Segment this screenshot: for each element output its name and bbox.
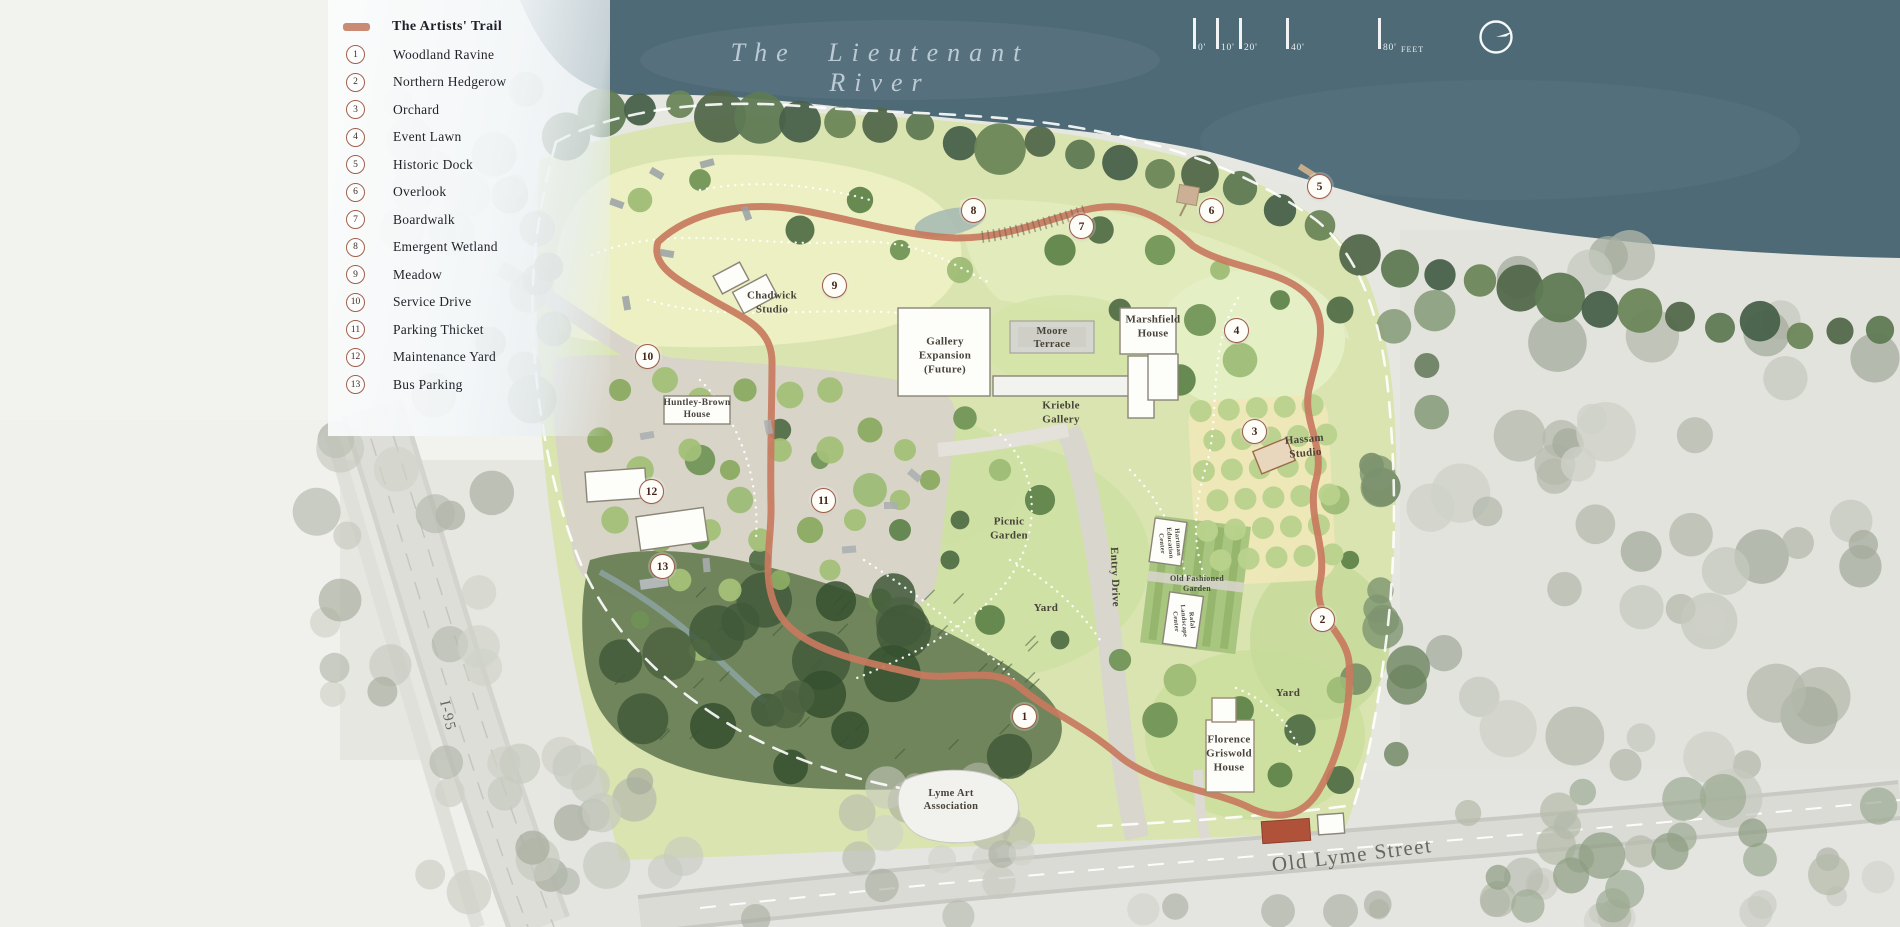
map-label-moore-terrace: Moore Terrace — [1034, 325, 1071, 351]
legend-item-label: Emergent Wetland — [393, 239, 498, 255]
map-label-old-fashioned-garden: Old Fashioned Garden — [1170, 574, 1224, 594]
scale-bar-unit: FEET — [1401, 45, 1424, 54]
map-marker-8: 8 — [961, 198, 986, 223]
map-marker-3: 3 — [1242, 419, 1267, 444]
legend-item-label: Woodland Ravine — [393, 47, 494, 63]
map-marker-4: 4 — [1224, 318, 1249, 343]
legend-item-number-icon: 6 — [346, 183, 365, 202]
map-marker-12: 12 — [639, 479, 664, 504]
legend-item-label: Overlook — [393, 184, 446, 200]
legend-item: 11 Parking Thicket — [328, 319, 610, 341]
legend-item-number-icon: 3 — [346, 100, 365, 119]
legend-item: 9 Meadow — [328, 264, 610, 286]
legend-item: 1 Woodland Ravine — [328, 44, 610, 66]
map-label-hassam-studio: Hassam Studio — [1284, 432, 1325, 463]
legend-item-number-icon: 2 — [346, 73, 365, 92]
map-label-rafal-landscape-center: Rafal Landscape Center — [1169, 604, 1196, 639]
legend-item-label: Northern Hedgerow — [393, 74, 506, 90]
legend-items: 1 Woodland Ravine 2 Northern Hedgerow 3 … — [328, 44, 610, 396]
map-label-entry-drive: Entry Drive — [1106, 547, 1122, 607]
north-arrow-icon — [1476, 18, 1516, 58]
legend-item: 2 Northern Hedgerow — [328, 71, 610, 93]
trail-swatch-icon — [343, 23, 370, 31]
legend-item-number-icon: 9 — [346, 265, 365, 284]
scale-bar: FEET 0'10'20'40'80' — [1185, 16, 1445, 64]
legend-item-label: Boardwalk — [393, 212, 455, 228]
legend-item-number-icon: 13 — [346, 375, 365, 394]
legend-item: 3 Orchard — [328, 99, 610, 121]
map-label-yard-west: Yard — [1034, 602, 1058, 616]
legend-panel: The Artists' Trail 1 Woodland Ravine 2 N… — [328, 0, 610, 436]
legend-item: 7 Boardwalk — [328, 209, 610, 231]
map-marker-1: 1 — [1012, 704, 1037, 729]
map-marker-5: 5 — [1307, 174, 1332, 199]
legend-item-number-icon: 4 — [346, 128, 365, 147]
map-label-lyme-art-association: Lyme Art Association — [924, 787, 979, 813]
legend-trail-row: The Artists' Trail — [328, 16, 610, 38]
scale-tick-label: 20' — [1244, 43, 1258, 53]
scale-tick-label: 40' — [1291, 43, 1305, 53]
map-label-yard-east: Yard — [1276, 687, 1300, 701]
map-marker-7: 7 — [1069, 214, 1094, 239]
scale-tick-label: 10' — [1221, 43, 1235, 53]
scale-tick-label: 80' — [1383, 43, 1397, 53]
map-label-picnic-garden: Picnic Garden — [990, 515, 1028, 543]
legend-item-number-icon: 5 — [346, 155, 365, 174]
legend-item-label: Service Drive — [393, 294, 472, 310]
map-marker-6: 6 — [1199, 198, 1224, 223]
legend-item-number-icon: 1 — [346, 45, 365, 64]
legend-item-number-icon: 10 — [346, 293, 365, 312]
legend-item-label: Bus Parking — [393, 377, 463, 393]
scale-tick — [1378, 18, 1381, 49]
map-label-gallery-expansion-future: Gallery Expansion (Future) — [919, 335, 971, 376]
river-title: The Lieutenant River — [700, 38, 1060, 98]
map-label-marshfield-house: Marshfield House — [1126, 313, 1181, 341]
scale-tick — [1239, 18, 1242, 49]
legend-item: 10 Service Drive — [328, 291, 610, 313]
map-marker-10: 10 — [635, 344, 660, 369]
scale-tick — [1193, 18, 1196, 49]
map-label-hartman-education-center: Hartman Education Center — [1155, 526, 1182, 559]
legend-item-label: Historic Dock — [393, 157, 473, 173]
legend-item: 12 Maintenance Yard — [328, 346, 610, 368]
map-marker-9: 9 — [822, 273, 847, 298]
map-label-krieble-gallery: Krieble Gallery — [1042, 399, 1080, 427]
scale-tick-label: 0' — [1198, 43, 1206, 53]
legend-item-label: Orchard — [393, 102, 439, 118]
scale-tick — [1286, 18, 1289, 49]
site-plan-map: The Lieutenant River The Artists' Trail … — [0, 0, 1900, 927]
scale-tick — [1216, 18, 1219, 49]
map-marker-2: 2 — [1310, 607, 1335, 632]
map-marker-11: 11 — [811, 488, 836, 513]
map-label-florence-griswold-house: Florence Griswold House — [1206, 733, 1252, 774]
legend-item-label: Meadow — [393, 267, 442, 283]
map-marker-13: 13 — [650, 554, 675, 579]
legend-trail-label: The Artists' Trail — [392, 19, 502, 35]
legend-item-label: Event Lawn — [393, 129, 462, 145]
legend-item: 4 Event Lawn — [328, 126, 610, 148]
legend-item-number-icon: 8 — [346, 238, 365, 257]
legend-item-number-icon: 11 — [346, 320, 365, 339]
map-label-huntley-brown-house: Huntley-Brown House — [663, 398, 730, 422]
legend-item: 6 Overlook — [328, 181, 610, 203]
legend-item-number-icon: 12 — [346, 348, 365, 367]
legend-item: 5 Historic Dock — [328, 154, 610, 176]
legend-item-number-icon: 7 — [346, 210, 365, 229]
legend-item-label: Parking Thicket — [393, 322, 484, 338]
legend-item: 8 Emergent Wetland — [328, 236, 610, 258]
legend-item: 13 Bus Parking — [328, 374, 610, 396]
legend-item-label: Maintenance Yard — [393, 349, 496, 365]
map-label-chadwick-studio: Chadwick Studio — [747, 289, 797, 317]
